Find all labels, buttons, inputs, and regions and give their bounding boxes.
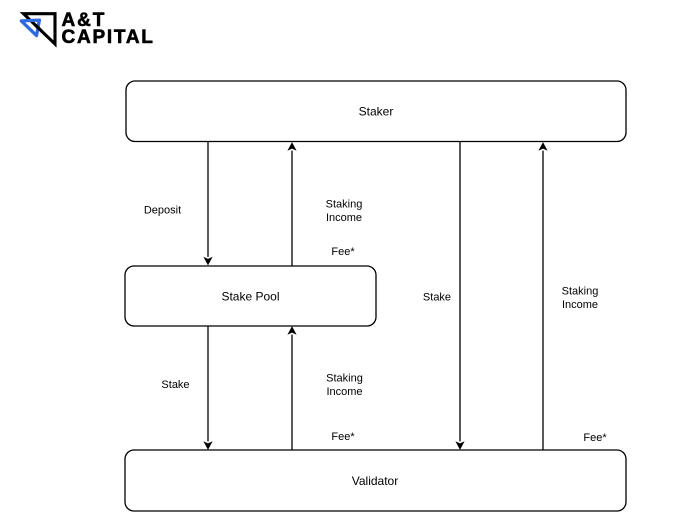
svg-text:CAPITAL: CAPITAL [62, 27, 155, 48]
svg-text:Staking: Staking [326, 198, 363, 210]
svg-text:Stake Pool: Stake Pool [221, 289, 279, 303]
svg-text:Staking: Staking [326, 373, 363, 385]
svg-text:Income: Income [562, 299, 598, 311]
svg-text:Stake: Stake [423, 291, 451, 303]
svg-text:Income: Income [326, 386, 362, 398]
svg-text:Staker: Staker [359, 104, 394, 118]
svg-text:Staking: Staking [562, 285, 599, 297]
svg-text:Fee*: Fee* [583, 432, 607, 444]
svg-text:Validator: Validator [352, 474, 398, 488]
svg-text:Stake: Stake [161, 379, 189, 391]
svg-text:Income: Income [326, 212, 362, 224]
svg-text:Fee*: Fee* [331, 246, 355, 258]
svg-text:Fee*: Fee* [331, 431, 355, 443]
svg-text:Deposit: Deposit [144, 204, 181, 216]
